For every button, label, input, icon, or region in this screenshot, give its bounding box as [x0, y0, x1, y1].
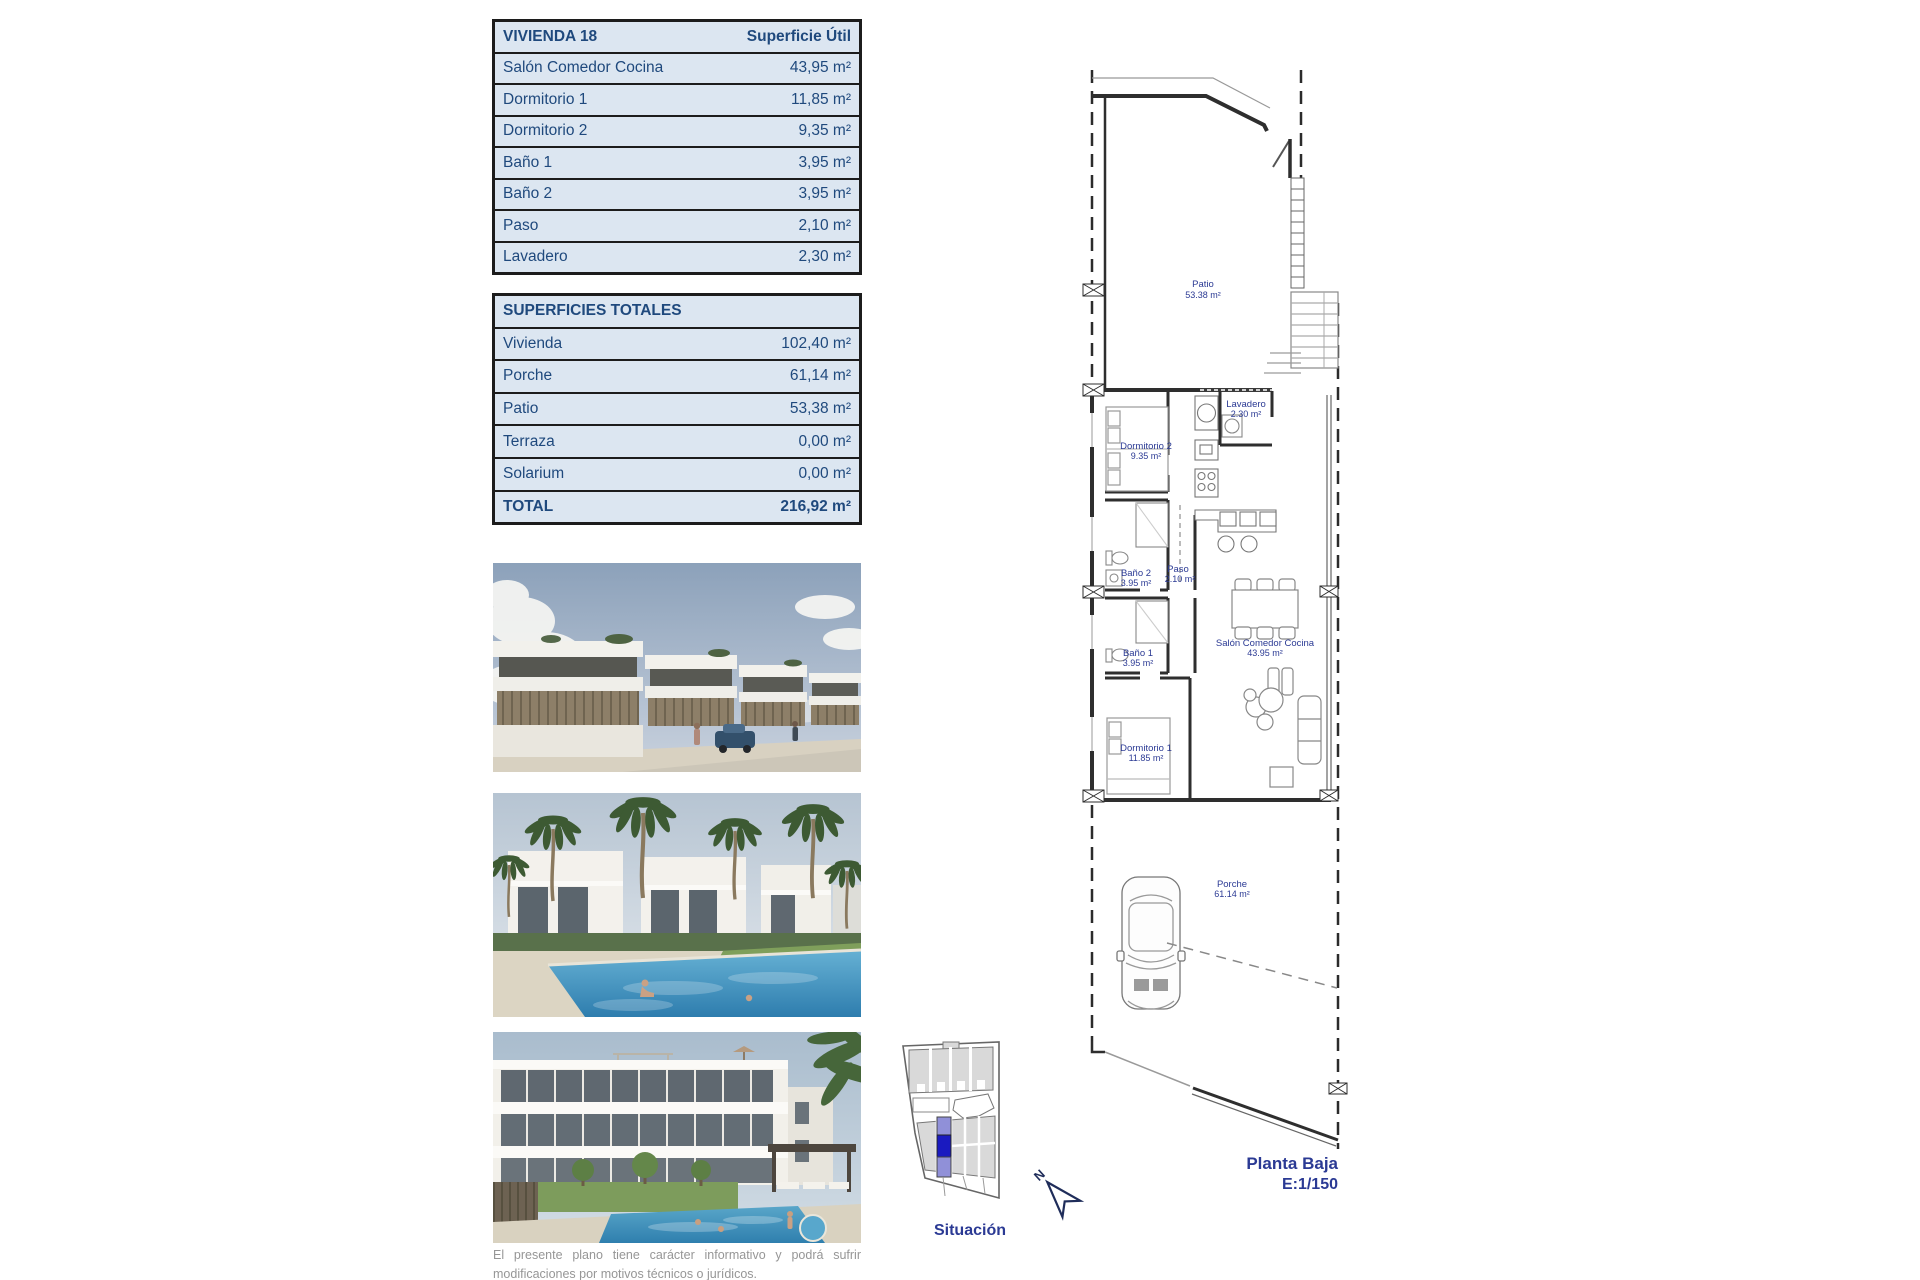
totals-table-title: SUPERFICIES TOTALES	[503, 302, 682, 320]
table-row: Dormitorio 29,35 m²	[495, 115, 859, 147]
room-label: Paso	[503, 217, 538, 235]
room-area-bano2: 3.95 m²	[1121, 578, 1152, 588]
room-area-bano1: 3.95 m²	[1123, 658, 1154, 668]
total-label: Vivienda	[503, 335, 562, 353]
room-label: Baño 1	[503, 154, 552, 172]
highlight-parcel-top	[937, 1117, 951, 1135]
total-area: 102,40 m²	[781, 335, 851, 353]
room-area-dormitorio1: 11.85 m²	[1129, 753, 1164, 763]
situation-label: Situación	[905, 1222, 1035, 1240]
situation-map	[893, 1038, 1013, 1223]
table-row: Paso2,10 m²	[495, 209, 859, 241]
plan-title: Planta Baja	[1246, 1154, 1338, 1173]
total-area: 216,92 m²	[780, 498, 851, 516]
room-area-paso: 2.10 m²	[1165, 574, 1196, 584]
highlight-parcel-main	[937, 1135, 951, 1157]
driveway-dashed	[1167, 943, 1337, 988]
table-row: Baño 23,95 m²	[495, 178, 859, 210]
room-area-porche: 61.14 m²	[1214, 889, 1250, 899]
room-area-lavadero: 2.30 m²	[1231, 409, 1262, 419]
north-needle	[1038, 1174, 1080, 1217]
stairs	[1264, 178, 1338, 373]
totals-table: SUPERFICIES TOTALES Vivienda102,40 m² Po…	[492, 293, 862, 525]
total-label: Terraza	[503, 433, 555, 451]
highlight-parcel-bottom	[937, 1157, 951, 1177]
table-row: Solarium0,00 m²	[495, 457, 859, 490]
total-area: 0,00 m²	[798, 465, 851, 483]
table-row: Lavadero2,30 m²	[495, 241, 859, 273]
total-area: 53,38 m²	[790, 400, 851, 418]
room-label-patio: Patio	[1192, 279, 1214, 290]
room-label: Dormitorio 1	[503, 91, 587, 109]
render-photo-street	[493, 563, 861, 772]
room-area-salon: 43.95 m²	[1247, 648, 1283, 658]
upper-parcels	[909, 1042, 993, 1093]
disclaimer-text: El presente plano tiene carácter informa…	[493, 1246, 861, 1280]
plan-sheet: VIVIENDA 18 Superficie Útil Salón Comedo…	[0, 0, 1920, 1280]
plan-title-block: Planta Baja E:1/150	[1246, 1154, 1338, 1193]
room-area: 2,30 m²	[798, 248, 851, 266]
room-label: Baño 2	[503, 185, 552, 203]
room-area: 9,35 m²	[798, 122, 851, 140]
total-area: 61,14 m²	[790, 367, 851, 385]
patio-area	[1092, 78, 1290, 390]
room-area: 43,95 m²	[790, 59, 851, 77]
fence	[493, 1182, 538, 1222]
room-area: 3,95 m²	[798, 154, 851, 172]
vivienda-table-header: VIVIENDA 18 Superficie Útil	[495, 22, 859, 52]
apartment-building	[493, 1046, 833, 1185]
floor-plan: Patio 53.38 m² Lavadero 2.30 m² Dormitor…	[1080, 55, 1360, 1200]
table-row: Patio53,38 m²	[495, 392, 859, 425]
room-label: Lavadero	[503, 248, 568, 266]
room-area: 11,85 m²	[791, 91, 851, 109]
room-area-patio: 53.38 m²	[1185, 290, 1221, 300]
table-row: Salón Comedor Cocina43,95 m²	[495, 52, 859, 84]
total-area: 0,00 m²	[798, 433, 851, 451]
north-letter: N	[1031, 1166, 1048, 1183]
total-label: Patio	[503, 400, 538, 418]
room-label: Dormitorio 2	[503, 122, 587, 140]
table-row-total: TOTAL216,92 m²	[495, 490, 859, 523]
garden	[538, 1182, 738, 1212]
table-row: Terraza0,00 m²	[495, 424, 859, 457]
room-area: 3,95 m²	[798, 185, 851, 203]
render-photo-apartments	[493, 1032, 861, 1243]
total-label: Solarium	[503, 465, 564, 483]
plot-bottom-edge	[1092, 1041, 1338, 1146]
totals-table-header: SUPERFICIES TOTALES	[495, 296, 859, 327]
total-label: Porche	[503, 367, 552, 385]
north-arrow-icon: N	[1030, 1156, 1086, 1226]
dining-set	[1232, 579, 1298, 639]
car	[1117, 877, 1185, 1009]
living-furniture	[1244, 668, 1321, 787]
table-row: Baño 13,95 m²	[495, 146, 859, 178]
room-area: 2,10 m²	[798, 217, 851, 235]
total-label: TOTAL	[503, 498, 553, 516]
plan-scale: E:1/150	[1282, 1176, 1338, 1193]
render-photo-pool	[493, 793, 861, 1017]
vivienda-table-header-value: Superficie Útil	[747, 28, 851, 46]
table-row: Porche61,14 m²	[495, 359, 859, 392]
table-row: Vivienda102,40 m²	[495, 327, 859, 360]
table-row: Dormitorio 111,85 m²	[495, 83, 859, 115]
spa	[800, 1215, 826, 1241]
vivienda-table: VIVIENDA 18 Superficie Útil Salón Comedo…	[492, 19, 862, 275]
room-area-dormitorio2: 9.35 m²	[1131, 451, 1162, 461]
vivienda-table-title: VIVIENDA 18	[503, 28, 597, 46]
room-label: Salón Comedor Cocina	[503, 59, 663, 77]
